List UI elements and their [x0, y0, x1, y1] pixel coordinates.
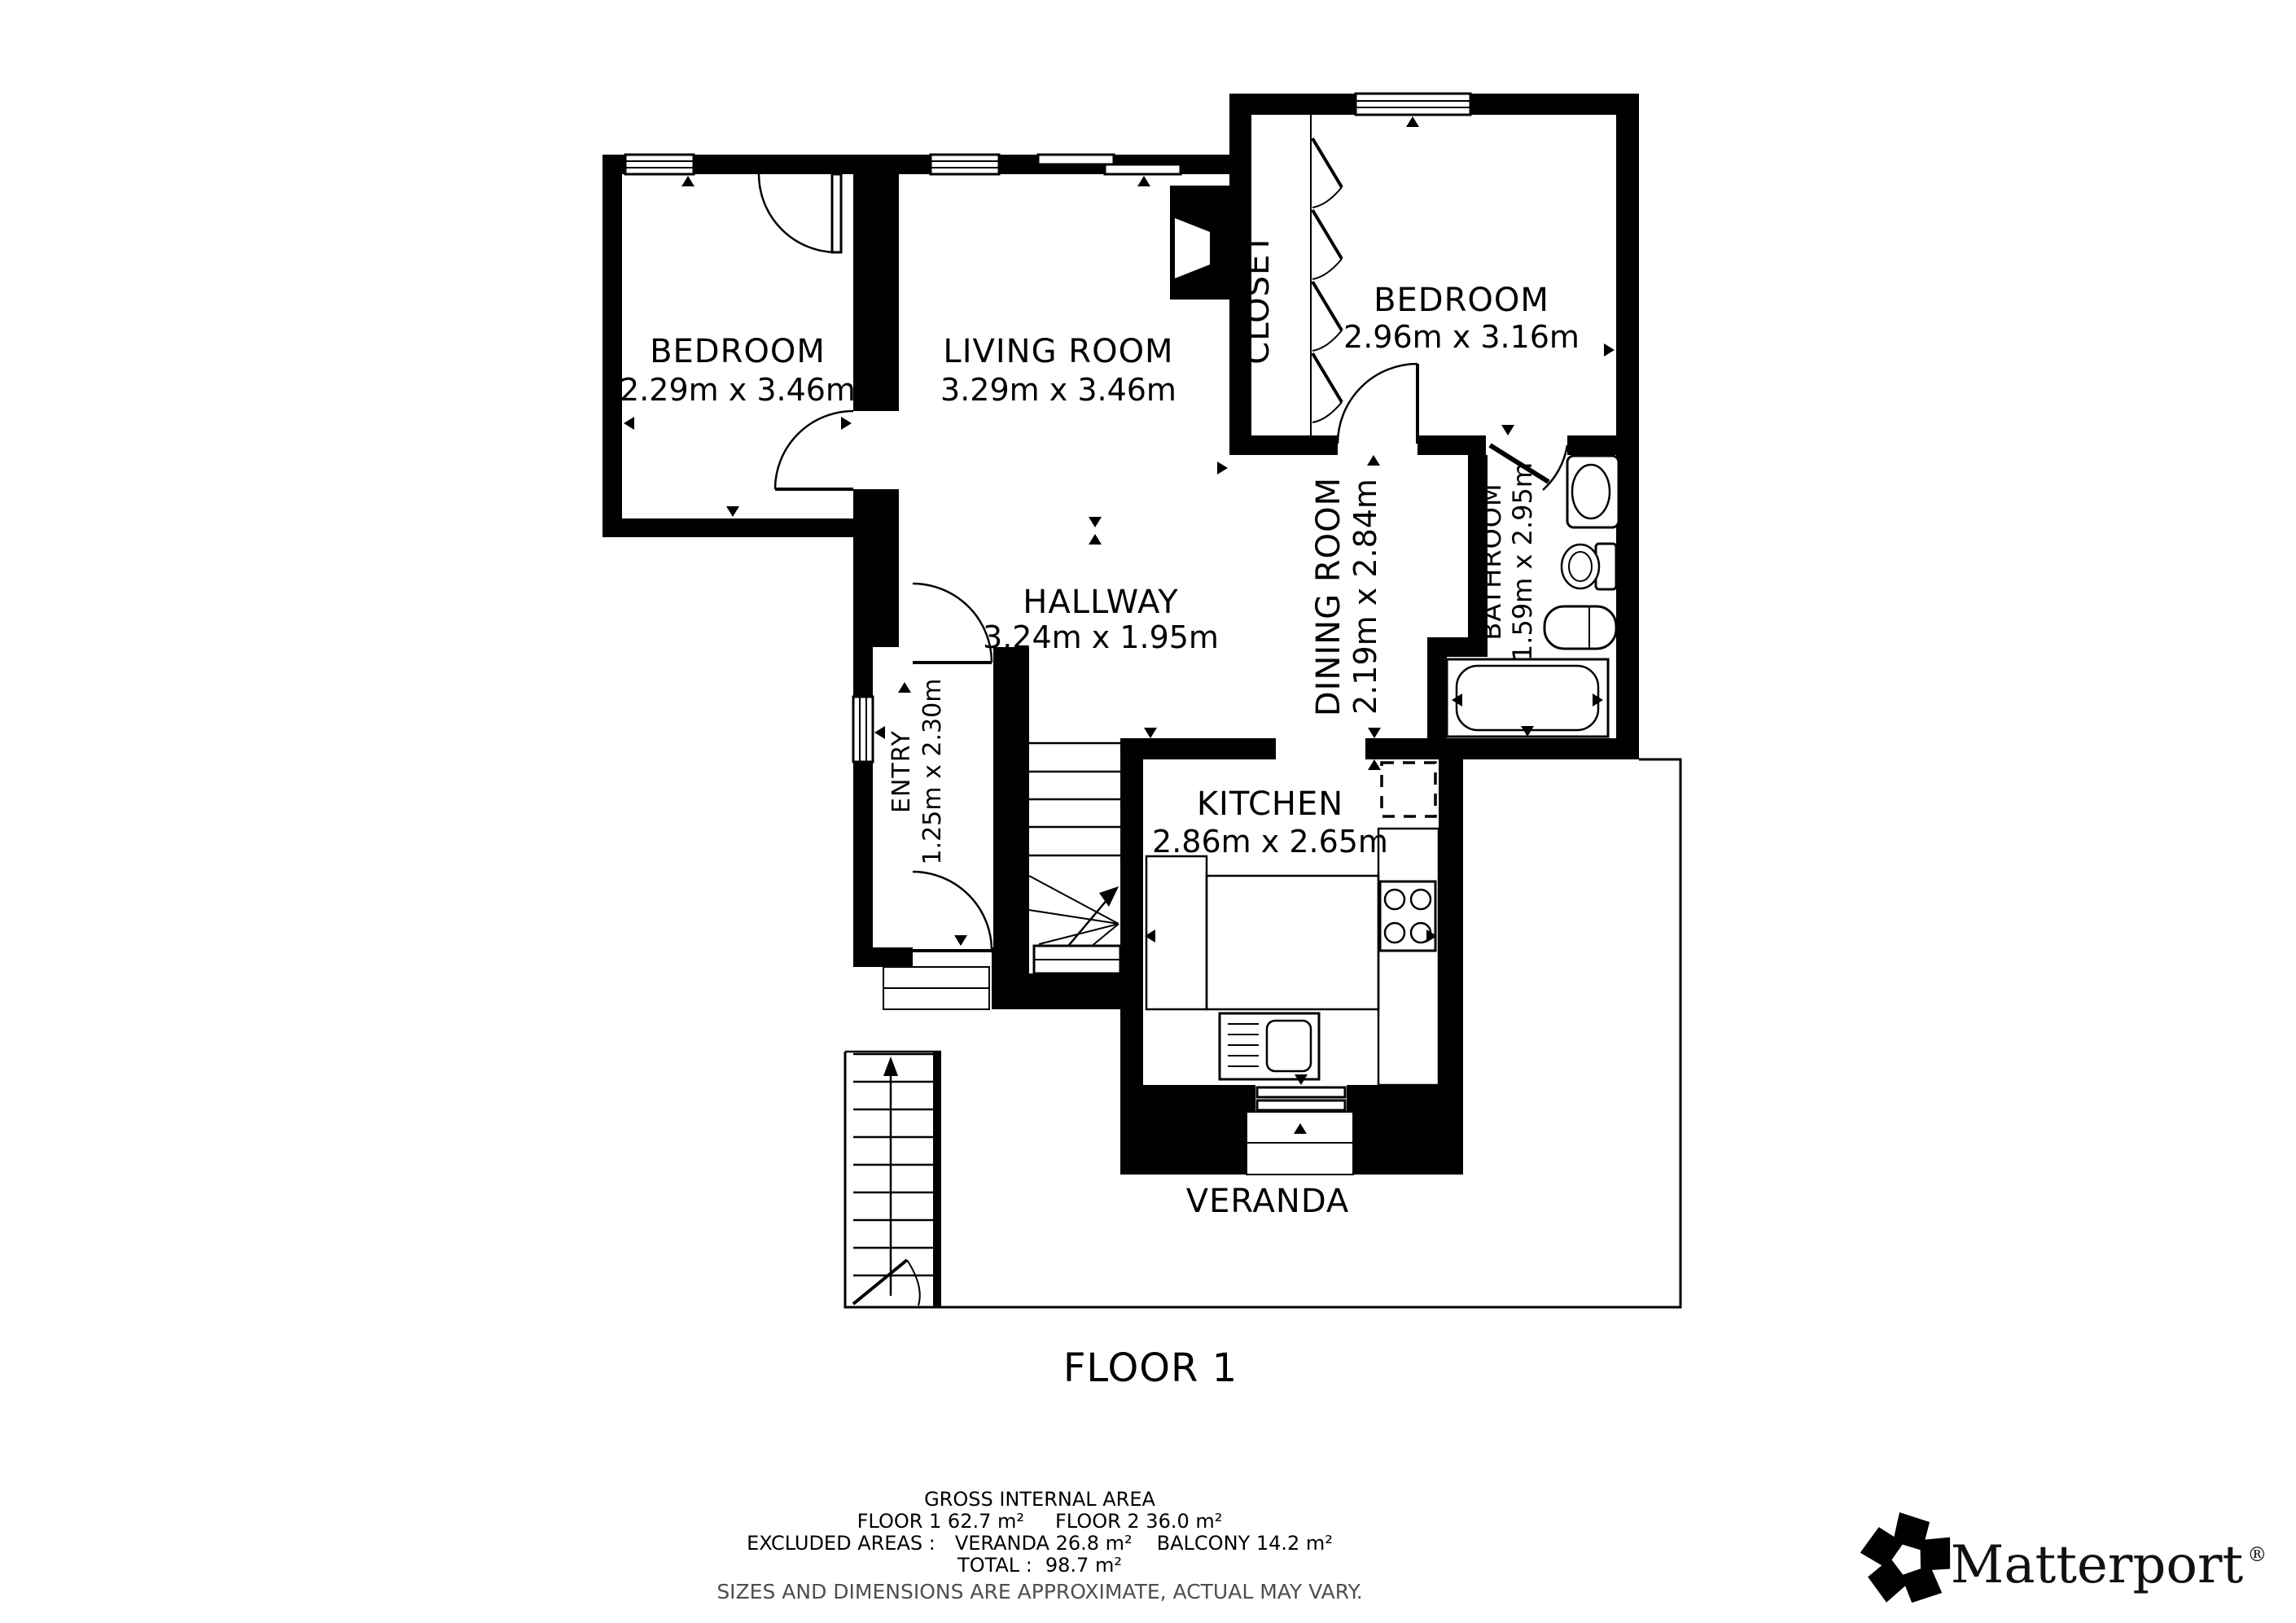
- room-living: LIVING ROOM 3.29m x 3.46m: [940, 333, 1176, 408]
- room-label: DINING ROOM: [1310, 477, 1347, 716]
- wall-kitchen-left: [1120, 738, 1143, 1112]
- toilet-icon: [1562, 544, 1616, 589]
- counter-center: [1207, 876, 1378, 1009]
- excluded-areas: EXCLUDED AREAS :VERANDA 26.8 m²BALCONY 1…: [747, 1532, 1333, 1555]
- wall-left-outer: [602, 155, 622, 537]
- room-dimensions: 2.29m x 3.46m: [620, 372, 856, 408]
- front-door: [913, 872, 992, 951]
- room-closet: CLOSET: [1239, 233, 1277, 364]
- wall-bedroom1-living-lower: [853, 489, 899, 537]
- wall-entry-bottom-a: [853, 947, 913, 967]
- veranda-sliding-door: [1257, 1087, 1345, 1110]
- room-label: ENTRY: [887, 730, 916, 813]
- gate-door-arc: [907, 1260, 920, 1306]
- room-label: BATHROOM: [1476, 483, 1507, 640]
- room-kitchen: KITCHEN 2.86m x 2.65m: [1152, 785, 1388, 860]
- area-summary: GROSS INTERNAL AREA FLOOR 1 62.7 m²FLOOR…: [716, 1488, 1362, 1603]
- living-room-window: [931, 155, 999, 174]
- room-label: CLOSET: [1239, 233, 1277, 364]
- entry-window: [853, 697, 873, 762]
- room-veranda: VERANDA: [1186, 1183, 1350, 1220]
- wall-entry-left-upper: [853, 647, 873, 697]
- matterport-pinwheel-icon: [1858, 1512, 1959, 1611]
- wall-bedroom1-living-upper: [853, 174, 899, 411]
- wall-hall-entry-junction: [853, 537, 899, 647]
- wall-under-stair: [1029, 973, 1120, 1009]
- floor-title: FLOOR 1: [1063, 1345, 1238, 1391]
- room-label: LIVING ROOM: [943, 333, 1173, 370]
- wall-kitchen-bottom-a: [1120, 1085, 1255, 1112]
- room-dimensions: 2.96m x 3.16m: [1343, 319, 1580, 355]
- bedroom1-window: [625, 155, 694, 174]
- gate-door-leaf: [853, 1260, 907, 1304]
- room-label: KITCHEN: [1197, 785, 1343, 823]
- stair-up-arrow-icon: [1099, 886, 1119, 907]
- room-label: BEDROOM: [1374, 282, 1549, 319]
- room-entry: ENTRY 1.25m x 2.30m: [887, 679, 947, 865]
- kitchen-sink-icon: [1220, 1013, 1319, 1079]
- room-dimensions: 3.29m x 3.46m: [940, 372, 1176, 408]
- exterior-staircase: [853, 1052, 941, 1307]
- porch-steps: [883, 967, 989, 1009]
- wall-kitchen-top-left: [1120, 738, 1276, 759]
- counter-left: [1146, 856, 1207, 1009]
- closet-bifold-doors: [1311, 115, 1342, 435]
- stair-up-arrow-icon: [883, 1056, 898, 1076]
- sink-icon: [1567, 456, 1619, 527]
- bedroom2-door: [1338, 364, 1417, 444]
- counter-right: [1378, 829, 1439, 1085]
- boiler-icon: [1545, 606, 1616, 649]
- disclaimer: SIZES AND DIMENSIONS ARE APPROXIMATE, AC…: [716, 1580, 1362, 1603]
- room-label: HALLWAY: [1023, 584, 1178, 621]
- matterport-logo: Matterport®: [1858, 1512, 2267, 1611]
- wall-bedroom2-bottom-a: [1229, 435, 1338, 455]
- room-label: BEDROOM: [650, 333, 826, 370]
- room-label: VERANDA: [1186, 1183, 1350, 1220]
- room-bedroom-2: BEDROOM 2.96m x 3.16m: [1343, 282, 1580, 355]
- room-dimensions: 1.25m x 2.30m: [918, 679, 947, 865]
- room-bedroom-1: BEDROOM 2.29m x 3.46m: [620, 333, 856, 408]
- veranda-steps: [1247, 1112, 1353, 1175]
- floor-areas: FLOOR 1 62.7 m²FLOOR 2 36.0 m²: [857, 1510, 1223, 1533]
- wall-entry-left-lower: [853, 762, 873, 967]
- matterport-wordmark: Matterport®: [1951, 1535, 2267, 1595]
- wall-entry-stair: [993, 647, 1029, 967]
- gross-area-title: GROSS INTERNAL AREA: [924, 1488, 1155, 1511]
- room-hallway: HALLWAY 3.24m x 1.95m: [983, 584, 1219, 655]
- exterior-stair-wall: [933, 1052, 941, 1307]
- room-dimensions: 2.86m x 2.65m: [1152, 824, 1388, 860]
- bedroom2-window: [1356, 94, 1470, 115]
- foundation-mass-a: [1120, 1112, 1247, 1175]
- wall-entry-bottom-b: [992, 947, 1029, 1009]
- room-dimensions: 2.19m x 2.84m: [1347, 479, 1383, 715]
- fridge-icon: [1382, 763, 1435, 816]
- wall-right-outer: [1616, 94, 1639, 759]
- total-area: TOTAL :98.7 m²: [957, 1554, 1122, 1577]
- room-dimensions: 1.59m x 2.95m: [1507, 462, 1538, 661]
- wall-kitchen-bottom-b: [1347, 1085, 1463, 1112]
- room-dimensions: 3.24m x 1.95m: [983, 619, 1219, 655]
- floor-plan: BEDROOM 2.29m x 3.46m LIVING ROOM 3.29m …: [0, 0, 2296, 1623]
- bedroom1-exterior-door: [759, 174, 841, 252]
- entry-hall-door: [913, 584, 992, 663]
- wall-bedroom2-bottom-b: [1417, 435, 1486, 455]
- wall-bedroom2-bottom-c: [1567, 435, 1639, 455]
- interior-staircase: [1029, 743, 1120, 973]
- foundation-mass-b: [1353, 1112, 1463, 1175]
- bathtub-icon: [1447, 659, 1608, 737]
- room-bathroom: BATHROOM 1.59m x 2.95m: [1476, 462, 1538, 661]
- room-dining: DINING ROOM 2.19m x 2.84m: [1310, 477, 1383, 716]
- wall-kitchen-right: [1439, 738, 1463, 1112]
